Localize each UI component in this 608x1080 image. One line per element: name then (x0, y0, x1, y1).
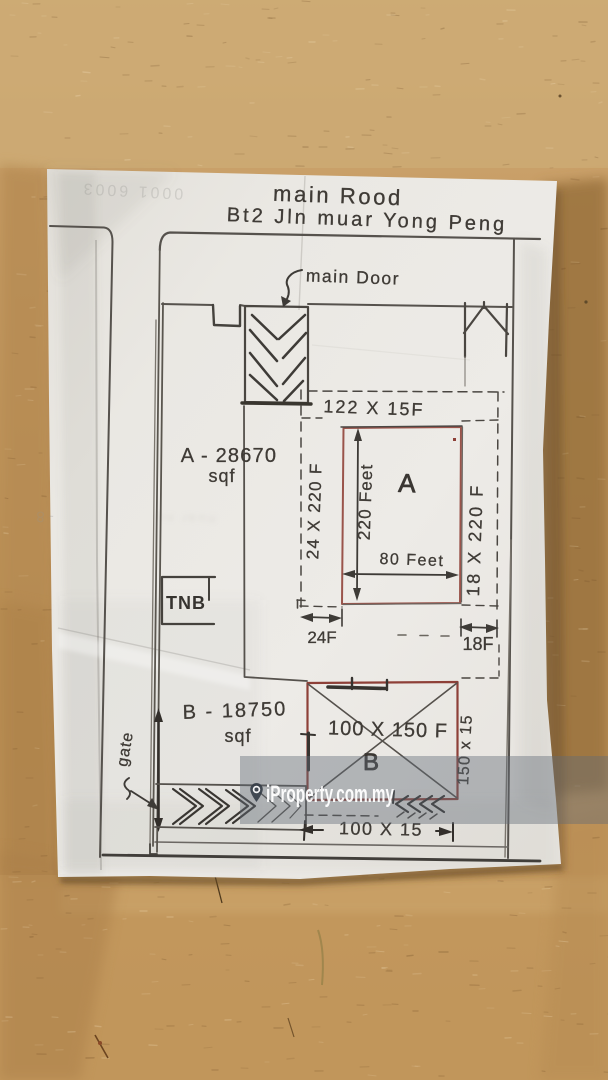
svg-text:B - 18750: B - 18750 (182, 698, 287, 724)
svg-text:A - 28670: A - 28670 (181, 445, 277, 467)
svg-text:80 Feet: 80 Feet (379, 551, 444, 570)
svg-text:sqf: sqf (224, 726, 251, 746)
svg-text:sqf: sqf (208, 466, 235, 486)
svg-text:122 X 15F: 122 X 15F (323, 396, 425, 420)
svg-text:18F: 18F (462, 634, 493, 654)
svg-text:iProperty.com.my: iProperty.com.my (266, 781, 394, 808)
svg-text:A: A (398, 468, 417, 499)
svg-text:24 X 220 F: 24 X 220 F (303, 462, 325, 560)
svg-text:- 8: - 8 (36, 508, 54, 526)
svg-text:TNB: TNB (166, 593, 206, 613)
svg-text:100 X 150 F: 100 X 150 F (328, 717, 449, 742)
svg-text:24F: 24F (307, 628, 336, 647)
svg-text:220 Feet: 220 Feet (355, 463, 377, 540)
svg-text:nuar no: nuar no (154, 510, 216, 528)
svg-text:main Door: main Door (306, 265, 401, 288)
svg-text:18 X 220 F: 18 X 220 F (463, 483, 487, 597)
